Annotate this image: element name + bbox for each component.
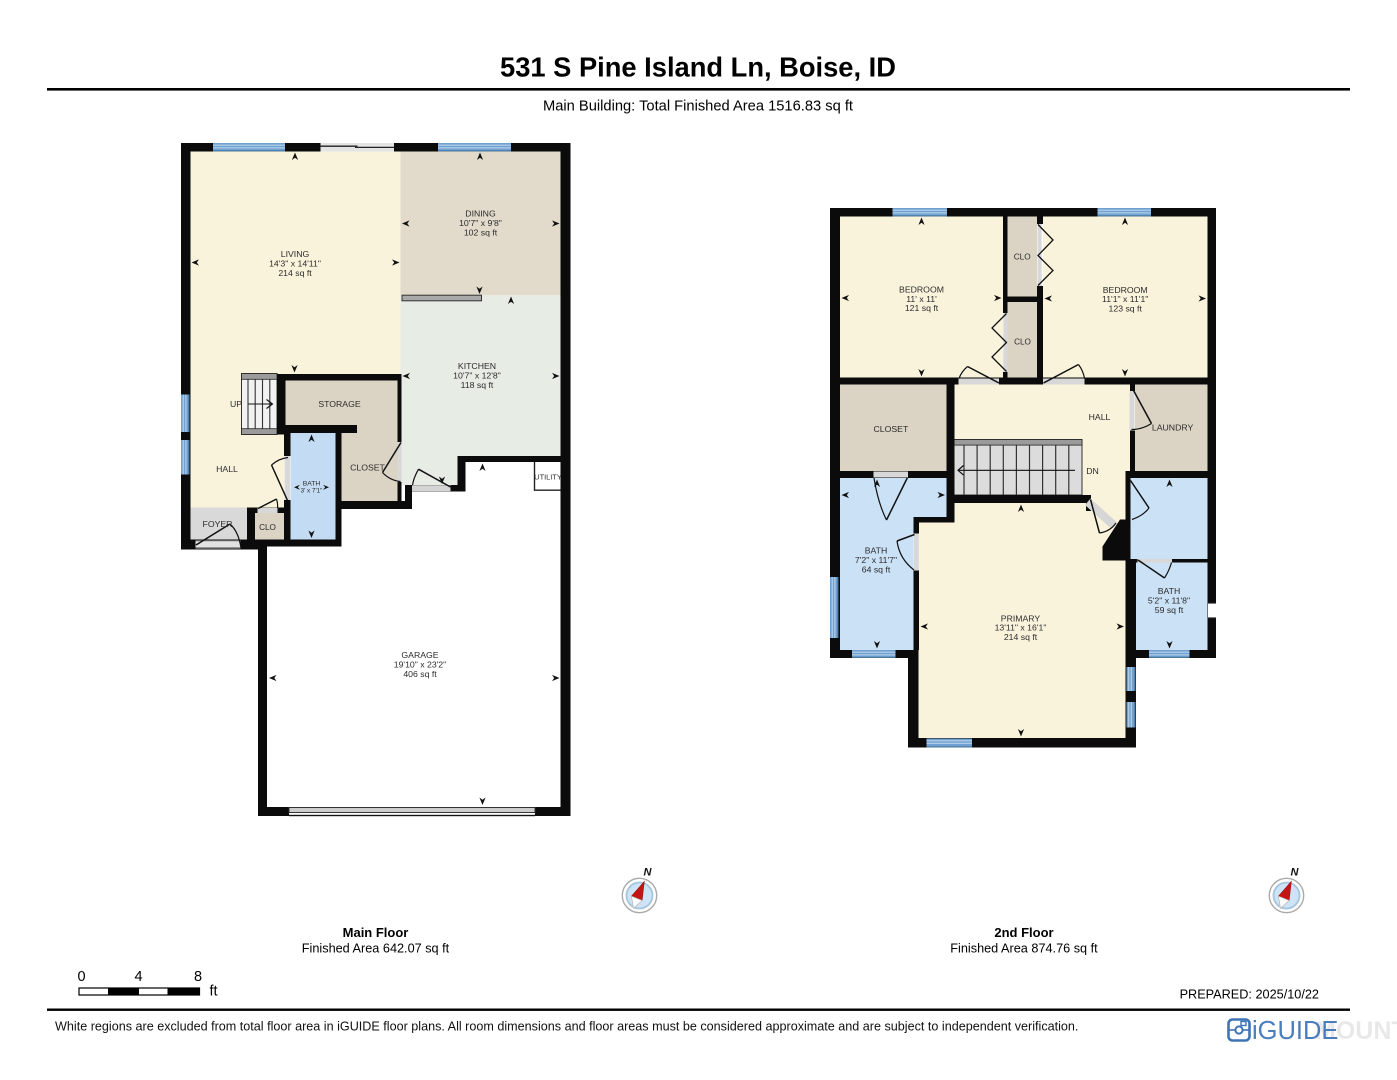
svg-text:CLO: CLO: [1014, 253, 1031, 262]
svg-text:59 sq ft: 59 sq ft: [1155, 605, 1184, 615]
svg-text:FOYER: FOYER: [203, 519, 233, 529]
svg-text:2nd Floor: 2nd Floor: [994, 925, 1053, 940]
svg-text:Finished Area 874.76 sq ft: Finished Area 874.76 sq ft: [950, 942, 1098, 956]
svg-text:0: 0: [77, 969, 85, 985]
svg-text:BATH: BATH: [303, 480, 321, 487]
svg-text:Main Building: Total Finished: Main Building: Total Finished Area 1516.…: [543, 99, 853, 115]
svg-text:CLOSET: CLOSET: [874, 424, 909, 434]
svg-text:214 sq ft: 214 sq ft: [278, 268, 312, 278]
svg-text:64 sq ft: 64 sq ft: [862, 565, 891, 575]
svg-text:UTILITY: UTILITY: [534, 472, 562, 481]
svg-text:CLOSET: CLOSET: [350, 462, 385, 472]
svg-text:118 sq ft: 118 sq ft: [461, 380, 494, 390]
svg-text:HALL: HALL: [1089, 412, 1111, 422]
svg-text:406 sq ft: 406 sq ft: [403, 669, 437, 679]
svg-text:531 S Pine Island Ln, Boise, I: 531 S Pine Island Ln, Boise, ID: [500, 52, 896, 83]
svg-text:UP: UP: [230, 399, 242, 409]
svg-text:HALL: HALL: [216, 464, 238, 474]
svg-text:102 sq ft: 102 sq ft: [464, 228, 498, 238]
svg-text:214 sq ft: 214 sq ft: [1004, 632, 1038, 642]
svg-text:N: N: [1291, 867, 1300, 879]
svg-text:LAUNDRY: LAUNDRY: [1152, 422, 1194, 432]
svg-text:CLO: CLO: [1014, 338, 1031, 347]
svg-text:DN: DN: [1086, 466, 1099, 476]
svg-text:N: N: [644, 867, 653, 879]
svg-text:CLO: CLO: [259, 523, 276, 532]
svg-text:Main Floor: Main Floor: [343, 925, 409, 940]
svg-text:ft: ft: [209, 984, 217, 1000]
svg-text:STORAGE: STORAGE: [318, 399, 361, 409]
svg-text:8: 8: [194, 969, 202, 985]
svg-text:White regions are excluded fro: White regions are excluded from total fl…: [55, 1020, 1078, 1034]
svg-text:121 sq ft: 121 sq ft: [905, 303, 939, 313]
svg-text:4: 4: [134, 969, 142, 985]
svg-text:iGUIDE: iGUIDE: [1252, 1017, 1338, 1045]
svg-text:PREPARED: 2025/10/22: PREPARED: 2025/10/22: [1180, 988, 1319, 1002]
svg-text:123 sq ft: 123 sq ft: [1109, 304, 1143, 314]
svg-text:3' x 7'1": 3' x 7'1": [301, 488, 323, 495]
svg-text:Finished Area 642.07 sq ft: Finished Area 642.07 sq ft: [302, 942, 450, 956]
